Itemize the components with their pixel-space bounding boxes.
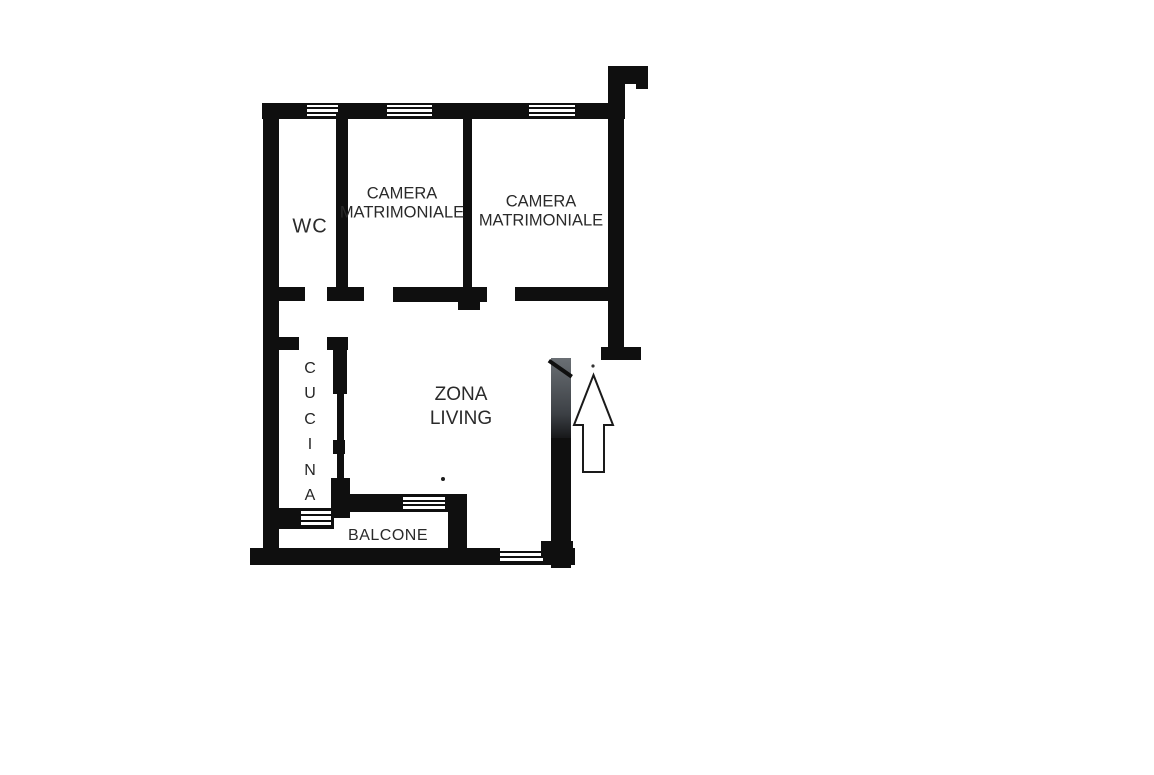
wall-mid-segment-1 — [263, 287, 305, 301]
cucina-letter: C — [304, 356, 316, 381]
wall-entry-foot — [541, 541, 573, 557]
room-label-camera2-line1: CAMERA — [479, 193, 603, 212]
cucina-letter: I — [308, 432, 312, 457]
room-label-zona-living: ZONA LIVING — [430, 383, 492, 431]
wall-divider-camera1-camera2 — [463, 112, 472, 300]
wall-kitchen-divider-thin — [337, 392, 344, 484]
wall-mid-segment-4 — [515, 287, 622, 301]
room-label-cucina: C U C I N A — [304, 356, 316, 508]
wall-mid-segment-2 — [327, 287, 364, 301]
wall-kitchen-divider-bump — [333, 440, 345, 454]
cucina-letter: A — [305, 483, 316, 508]
room-label-wc: WC — [292, 216, 327, 239]
cucina-letter: N — [304, 458, 316, 483]
room-label-camera-matrimoniale-2: CAMERA MATRIMONIALE — [479, 193, 603, 230]
room-label-camera-matrimoniale-1: CAMERA MATRIMONIALE — [340, 185, 464, 222]
wall-mid-segment-3-foot — [458, 300, 480, 310]
room-label-zona-line2: LIVING — [430, 407, 492, 431]
wall-right — [608, 84, 624, 352]
wall-balcony-step — [448, 494, 467, 554]
window-living-bottom — [500, 548, 543, 561]
window-wc — [307, 105, 338, 116]
stray-dot — [441, 477, 445, 481]
room-label-camera1-line1: CAMERA — [340, 185, 464, 204]
wall-kitchen-divider-upper — [333, 348, 347, 394]
cucina-letter: C — [304, 407, 316, 432]
floor-plan: WC CAMERA MATRIMONIALE CAMERA MATRIMONIA… — [0, 0, 1154, 775]
entrance-arrow-icon — [565, 358, 623, 480]
room-label-balcone: BALCONE — [348, 527, 428, 545]
wall-left — [263, 103, 279, 565]
wall-top-right-protrusion-cap — [636, 66, 648, 89]
window-camera2 — [529, 105, 575, 116]
room-label-camera1-line2: MATRIMONIALE — [340, 203, 464, 222]
cucina-letter: U — [304, 381, 316, 406]
room-label-zona-line1: ZONA — [430, 383, 492, 407]
window-balcony-door — [403, 497, 445, 509]
window-camera1 — [387, 105, 432, 116]
wall-kitchen-jamb — [279, 337, 299, 350]
room-label-camera2-line2: MATRIMONIALE — [479, 211, 603, 230]
window-kitchen — [301, 511, 331, 525]
